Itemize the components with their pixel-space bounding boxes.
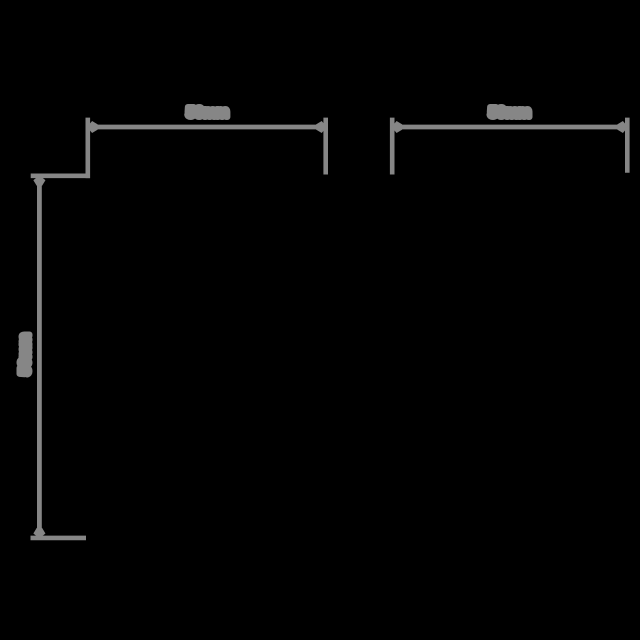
svg-text:50mm: 50mm — [489, 104, 531, 121]
svg-text:50mm: 50mm — [187, 104, 229, 121]
svg-text:50mm: 50mm — [17, 333, 34, 375]
